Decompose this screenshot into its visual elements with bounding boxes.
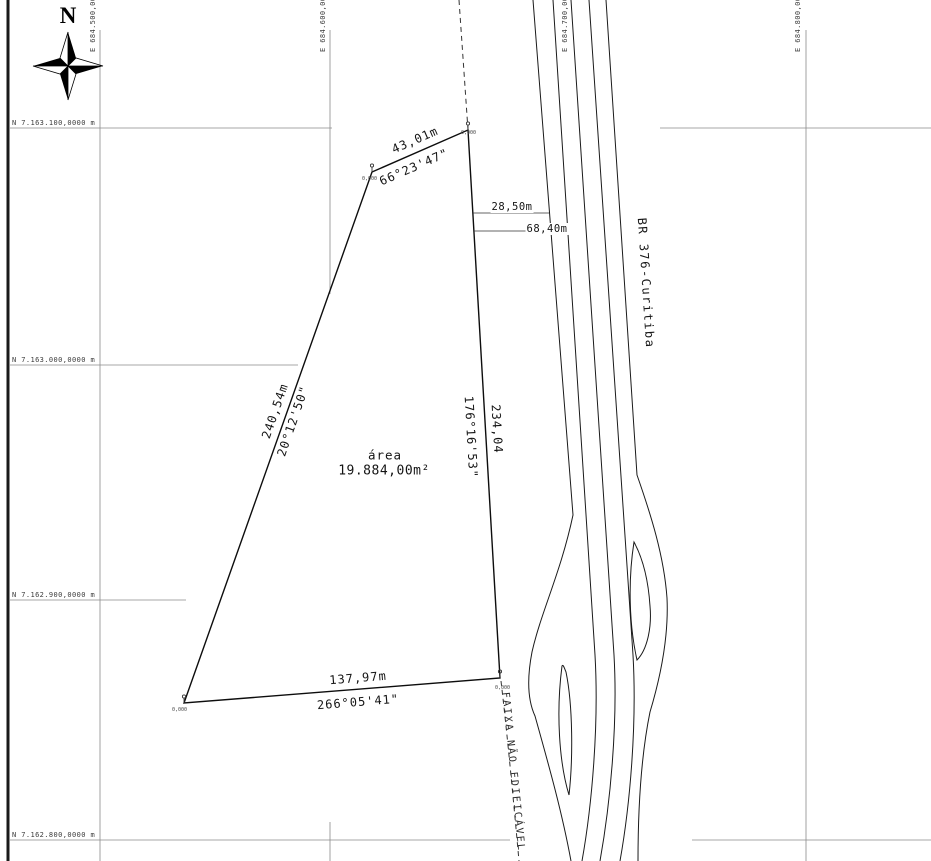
- grid-label-northing-4: N 7.162.800,0000 m: [12, 831, 95, 839]
- vertex-markers: [182, 122, 501, 703]
- grid-label-northing-2: N 7.163.000,0000 m: [12, 356, 95, 364]
- vertex-marker: [466, 122, 469, 130]
- grid-label-easting-4: E 684.800,0000: [794, 0, 802, 52]
- highway-edge-lines: [529, 0, 668, 861]
- survey-plat-drawing: N N 7.163.100,0000 m N 7.163.000,0000 m …: [0, 0, 931, 861]
- vertex-elevation-nw: 0,000: [362, 176, 377, 182]
- dimension-east-length: 234,04: [489, 404, 506, 454]
- vertex-elevation-se: 0,000: [495, 685, 510, 691]
- sheet-border-left: [7, 0, 10, 861]
- grid-label-easting-1: E 684.500,0000: [89, 0, 97, 52]
- parcel-boundary: [184, 130, 500, 703]
- traffic-island-outlines: [559, 542, 651, 795]
- grid-label-easting-3: E 684.700,0000: [561, 0, 569, 52]
- grid-label-easting-2: E 684.600,0000: [319, 0, 327, 52]
- compass-north-label: N: [60, 3, 77, 29]
- offset-dimension-68m: 68,40m: [526, 223, 569, 235]
- grid-label-northing-3: N 7.162.900,0000 m: [12, 591, 95, 599]
- vertex-elevation-ne: 0,000: [461, 130, 476, 136]
- parcel-area-title: área: [368, 448, 402, 463]
- grid-label-northing-1: N 7.163.100,0000 m: [12, 119, 95, 127]
- parcel-area-value: 19.884,00m²: [338, 464, 430, 479]
- offset-dimension-28m: 28,50m: [491, 201, 534, 213]
- vertex-elevation-sw: 0,000: [172, 707, 187, 713]
